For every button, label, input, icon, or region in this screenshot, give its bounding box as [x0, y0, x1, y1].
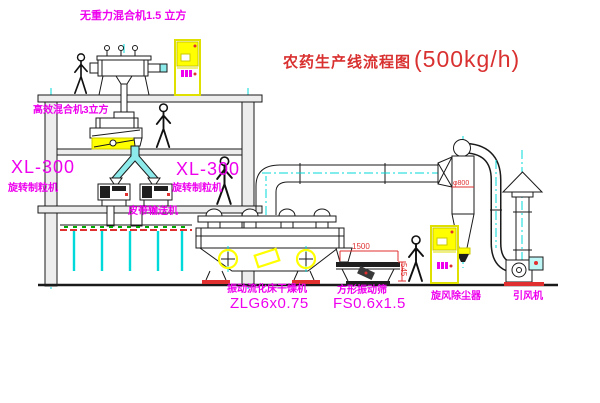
granulator-left [96, 178, 132, 206]
label-granulator-left-model: XL-300 [11, 158, 75, 176]
dim-sieve-length: 1500 [352, 243, 370, 251]
belt-conveyor [60, 225, 192, 271]
exhaust-duct [256, 157, 452, 215]
granulator-right [138, 178, 174, 206]
fan-base [504, 282, 544, 286]
mixer-outlet-cap [160, 64, 167, 72]
label-cyclone: 旋风除尘器 [431, 292, 481, 302]
dryer-bed [196, 228, 344, 248]
label-dryer-name: 振动流化床干燥机 [227, 285, 307, 295]
page-title: 农药生产线流程图 (500kg/h) [283, 46, 520, 73]
label-fan: 引风机 [513, 292, 543, 302]
dim-sieve-height: 545 [399, 263, 407, 276]
control-cabinet-right [431, 226, 458, 283]
person-roof [75, 54, 87, 93]
person-ground [409, 236, 423, 281]
fluid-bed-dryer [196, 209, 352, 284]
label-dryer-model: ZLG6x0.75 [230, 296, 309, 311]
label-gravity-free-mixer: 无重力混合机1.5 立方 [80, 11, 186, 22]
middle-slab [57, 149, 242, 155]
label-granulator-right-model: XL-300 [176, 160, 240, 178]
label-belt-conveyor: 皮带输送机 [128, 207, 178, 217]
label-granulator-right-name: 旋转制粒机 [172, 184, 222, 194]
title-capacity: (500kg/h) [414, 46, 520, 73]
rain-cap [503, 172, 542, 192]
label-granulator-left-name: 旋转制粒机 [8, 184, 58, 194]
granulator-chute-left [107, 206, 114, 226]
dryer-outlet-chute [336, 248, 352, 262]
mixer-downpipe [121, 84, 127, 112]
person-middle-floor [157, 104, 170, 147]
roof-slab [38, 95, 262, 102]
high-efficiency-mixer [90, 112, 142, 149]
label-high-efficiency-mixer: 高效混合机3立方 [33, 106, 109, 116]
cyclone-vortex-outlet [454, 140, 471, 157]
dim-cyclone-diameter: φ800 [453, 180, 469, 187]
control-cabinet-top [175, 40, 200, 95]
process-flow-diagram: 农药生产线流程图 (500kg/h) 无重力混合机1.5 立方 高效混合机3立方… [0, 0, 600, 403]
label-sieve-model: FS0.6x1.5 [333, 296, 406, 311]
title-text: 农药生产线流程图 [283, 51, 411, 72]
induced-draft-fan [504, 257, 544, 286]
mixer-discharge [134, 138, 142, 146]
